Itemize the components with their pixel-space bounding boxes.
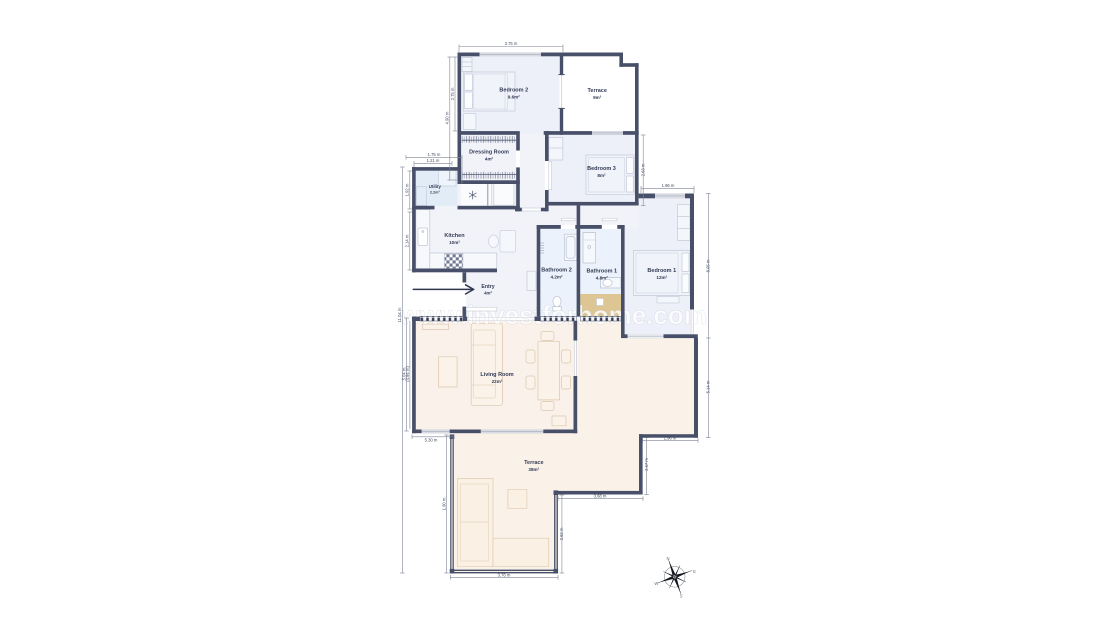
svg-text:2.67 m: 2.67 m xyxy=(644,458,649,471)
svg-text:5.14 m: 5.14 m xyxy=(705,380,710,393)
svg-text:22m²: 22m² xyxy=(492,379,503,384)
svg-text:E: E xyxy=(693,569,696,574)
svg-text:4.90 m: 4.90 m xyxy=(445,111,450,124)
svg-text:8.05 m: 8.05 m xyxy=(705,259,710,272)
svg-text:1.92 m: 1.92 m xyxy=(405,183,410,196)
svg-text:Utility: Utility xyxy=(429,184,442,189)
svg-text:1.21 m: 1.21 m xyxy=(427,158,440,163)
svg-text:1.90 m: 1.90 m xyxy=(441,497,446,510)
svg-text:10m²: 10m² xyxy=(449,240,460,245)
svg-text:3.76 m: 3.76 m xyxy=(498,572,511,577)
svg-text:2.75 m: 2.75 m xyxy=(450,87,455,100)
svg-text:Terrace: Terrace xyxy=(524,460,543,466)
svg-text:1.75 m: 1.75 m xyxy=(428,152,441,157)
svg-text:8m²: 8m² xyxy=(597,173,606,178)
svg-text:1.96 m: 1.96 m xyxy=(664,435,677,440)
svg-text:Bedroom 3: Bedroom 3 xyxy=(587,166,616,172)
svg-text:Bedroom 2: Bedroom 2 xyxy=(499,88,528,94)
svg-text:Bedroom 1: Bedroom 1 xyxy=(647,268,676,274)
svg-text:3.68 m: 3.68 m xyxy=(594,493,607,498)
svg-text:2.63 m: 2.63 m xyxy=(640,163,645,176)
svg-text:12m²: 12m² xyxy=(656,275,667,280)
svg-text:38m²: 38m² xyxy=(528,467,539,472)
svg-text:Living Room: Living Room xyxy=(480,372,513,378)
svg-text:4m²: 4m² xyxy=(485,157,494,162)
svg-text:Kitchen: Kitchen xyxy=(444,233,465,239)
svg-text:9m²: 9m² xyxy=(593,95,602,100)
svg-text:www.investforhome.com: www.investforhome.com xyxy=(399,300,707,330)
svg-text:Bathroom 2: Bathroom 2 xyxy=(541,268,572,274)
svg-text:2.14 m: 2.14 m xyxy=(405,234,410,247)
svg-text:W: W xyxy=(654,581,658,586)
svg-text:Terrace: Terrace xyxy=(587,88,606,94)
svg-text:5.30 m: 5.30 m xyxy=(425,438,438,443)
svg-text:2.2m²: 2.2m² xyxy=(430,190,441,194)
svg-text:N: N xyxy=(666,556,669,561)
svg-text:S: S xyxy=(680,594,683,599)
svg-text:11.04 m: 11.04 m xyxy=(397,307,402,322)
svg-text:4.8m²: 4.8m² xyxy=(596,275,608,280)
svg-text:Entry: Entry xyxy=(481,284,494,290)
svg-text:4.2m²: 4.2m² xyxy=(550,274,562,279)
svg-text:Bathroom 1: Bathroom 1 xyxy=(587,269,618,275)
svg-text:1.96 m: 1.96 m xyxy=(662,183,675,188)
svg-text:3.75 m: 3.75 m xyxy=(505,41,518,46)
svg-text:Dressing Room: Dressing Room xyxy=(469,150,509,156)
svg-text:4m²: 4m² xyxy=(484,290,492,295)
svg-text:9.6m²: 9.6m² xyxy=(508,94,520,99)
svg-text:(4.94 m): (4.94 m) xyxy=(405,366,410,382)
svg-text:2.92 m: 2.92 m xyxy=(559,527,564,540)
